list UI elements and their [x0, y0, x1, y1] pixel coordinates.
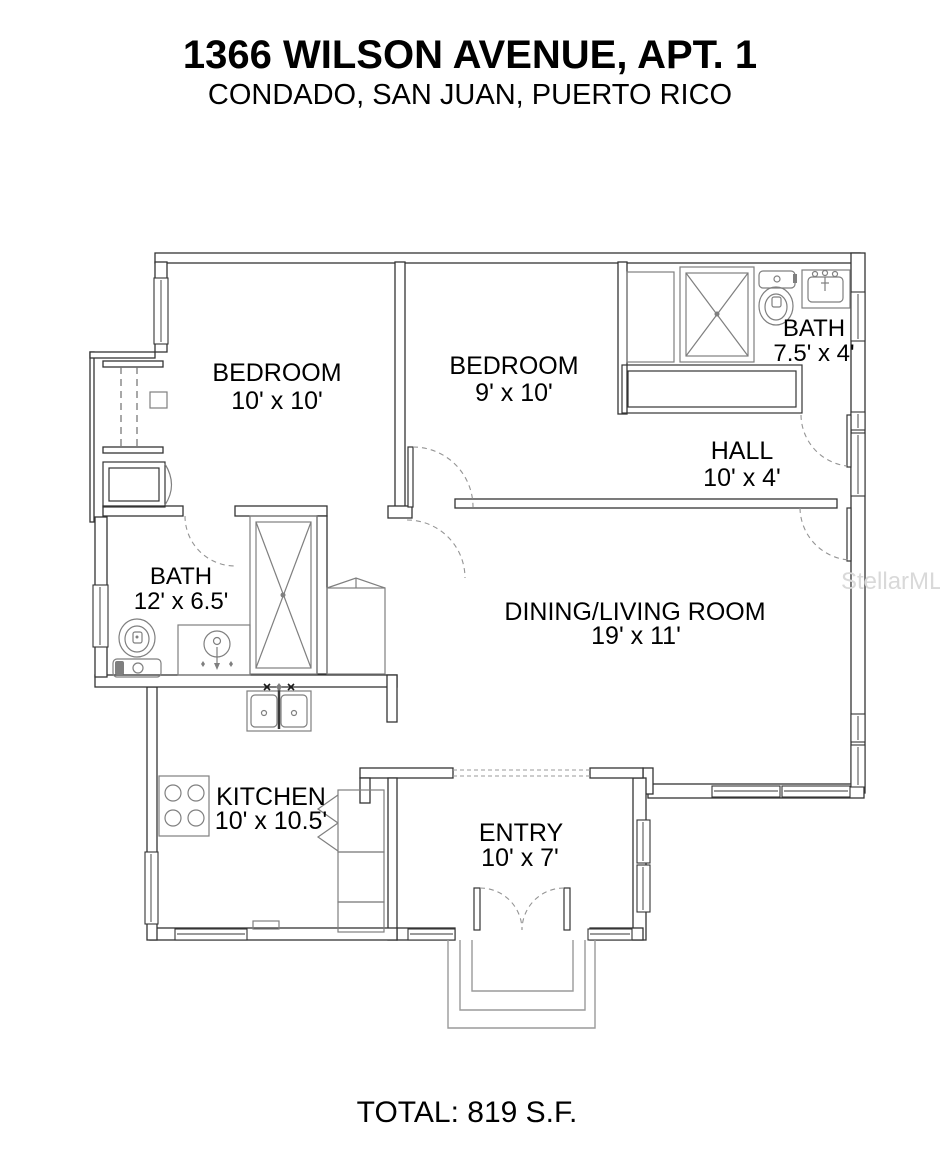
floor-plan-page: 1366 WILSON AVENUE, APT. 1 CONDADO, SAN … — [0, 0, 940, 1152]
entry-opening — [453, 770, 590, 776]
linen-cabinet-icon — [627, 272, 674, 362]
window-icon — [851, 714, 865, 742]
bath1-dims: 7.5' x 4' — [773, 340, 854, 367]
bath2-label: BATH — [150, 563, 212, 590]
bedroom2-dims: 9' x 10' — [475, 379, 553, 407]
window-icon — [851, 433, 865, 496]
floor-plan-svg: 1366 WILSON AVENUE, APT. 1 CONDADO, SAN … — [0, 0, 940, 1152]
window-icon — [408, 929, 455, 940]
left-closet — [103, 367, 172, 507]
watermark: StellarMLS — [841, 568, 940, 595]
bedroom1-label: BEDROOM — [212, 359, 341, 387]
window-icon — [637, 865, 650, 912]
cabinet-icon — [318, 790, 384, 932]
dining-living-dims: 19' x 11' — [591, 622, 681, 650]
door-bedroom2 — [408, 447, 473, 507]
door-bath2 — [185, 516, 235, 566]
hall-closet — [622, 365, 802, 413]
kitchen-sink-icon — [247, 683, 311, 731]
page-title: 1366 WILSON AVENUE, APT. 1 — [183, 33, 757, 77]
page-subtitle: CONDADO, SAN JUAN, PUERTO RICO — [208, 79, 732, 111]
kitchen-dims: 10' x 10.5' — [215, 807, 327, 835]
stove-icon — [159, 776, 209, 836]
entry-steps-icon — [448, 940, 595, 1028]
bedroom2-label: BEDROOM — [449, 352, 578, 380]
bedroom1-dims: 10' x 10' — [231, 387, 323, 415]
window-icon — [93, 585, 108, 647]
toilet-icon — [113, 619, 161, 677]
window-icon — [175, 929, 247, 940]
entry-dims: 10' x 7' — [481, 844, 559, 872]
sink-icon — [802, 270, 850, 308]
vanity-sink-icon — [178, 625, 250, 675]
window-icon — [851, 292, 865, 341]
bath1-label: BATH — [783, 315, 845, 342]
window-icon — [712, 786, 780, 797]
entry-label: ENTRY — [479, 819, 564, 847]
window-icon — [782, 786, 850, 797]
cabinet-icon — [327, 578, 385, 674]
door-hall-dining — [800, 508, 851, 561]
shower-icon — [250, 516, 317, 674]
window-icon — [145, 852, 158, 924]
window-icon — [154, 278, 168, 344]
window-icon — [851, 745, 865, 787]
bath2-dims: 12' x 6.5' — [134, 588, 229, 615]
door-bath1 — [801, 415, 851, 467]
shower-icon — [680, 267, 754, 362]
door-dining — [407, 520, 465, 578]
entry-double-door — [474, 888, 570, 930]
window-icon — [588, 929, 632, 940]
window-icon — [851, 412, 865, 430]
total-area-label: TOTAL: 819 S.F. — [357, 1096, 578, 1129]
hall-dims: 10' x 4' — [703, 464, 781, 492]
window-icon — [637, 820, 650, 863]
hall-label: HALL — [711, 437, 774, 465]
